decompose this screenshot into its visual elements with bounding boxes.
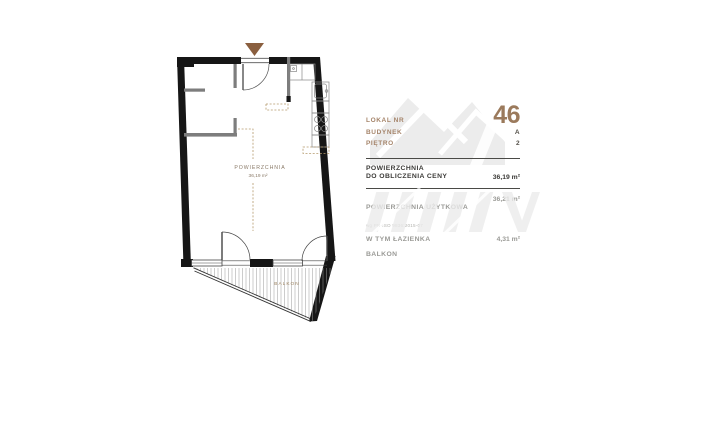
entrance-arrow-icon [245,43,264,56]
floor-plan: POWIERZCHNIA 36,19 m² BALKON [0,0,710,424]
balcony [193,268,332,322]
unit-info-panel: LOKAL NR 46 BUDYNEK A PIĘTRO 2 POWIERZCH… [366,104,520,258]
panel-divider-1 [366,158,520,159]
building-label: BUDYNEK [366,129,402,136]
plan-area-label: POWIERZCHNIA [234,165,285,171]
plan-balcony-label: BALKON [274,281,299,287]
unit-number-value: 46 [493,104,520,127]
plan-area-value: 36,19 m² [249,173,268,179]
bathroom-value: 4,31 m² [497,236,520,243]
price-area-value: 36,19 m² [493,174,520,181]
floor-value: 2 [516,140,520,147]
balcony-row: BALKON [366,251,520,258]
building-value: A [515,129,520,136]
price-area-row: POWIERZCHNIA DO OBLICZENIA CENY 36,19 m² [366,165,520,182]
usable-area-label: POWIERZCHNIA UŻYTKOWA wg PN-ISO 9836:201… [366,196,468,232]
entrance-door [241,58,269,90]
floor-row: PIĘTRO 2 [366,140,520,147]
bathroom-label: W TYM ŁAZIENKA [366,236,431,243]
bathroom-row: W TYM ŁAZIENKA 4,31 m² [366,236,520,243]
building-row: BUDYNEK A [366,129,520,136]
balcony-label: BALKON [366,251,397,258]
floorplan-card: POWIERZCHNIA 36,19 m² BALKON LOKAL NR 46… [0,0,710,424]
panel-divider-2 [366,188,520,189]
interior-walls [184,57,291,137]
unit-number-label: LOKAL NR [366,117,404,124]
usable-area-value: 36,21 m² [493,196,520,203]
price-area-label: POWIERZCHNIA DO OBLICZENIA CENY [366,165,447,182]
usable-area-row: POWIERZCHNIA UŻYTKOWA wg PN-ISO 9836:201… [366,196,520,232]
floor-label: PIĘTRO [366,140,394,147]
unit-number-row: LOKAL NR 46 [366,104,520,127]
